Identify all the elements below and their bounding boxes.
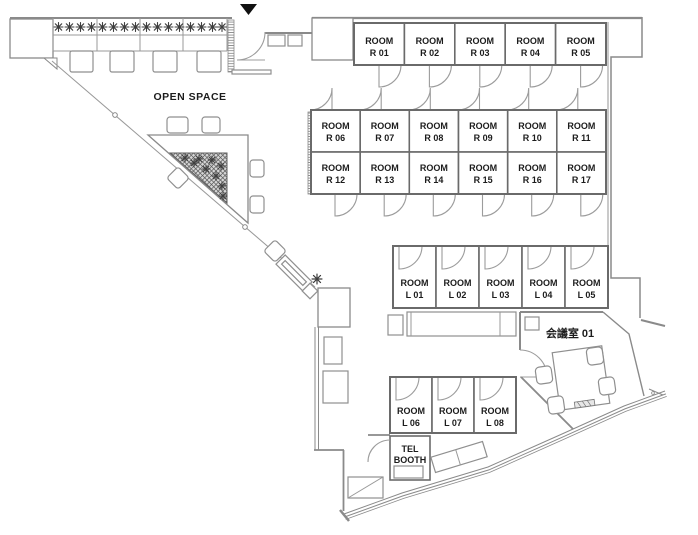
svg-text:ROOM: ROOM <box>371 163 399 173</box>
room-r06: ROOM R 06 <box>310 88 360 152</box>
room-r04: ROOM R 04 <box>505 23 555 87</box>
room-r16: ROOM R 16 <box>508 152 557 216</box>
tel-booth-label: TEL <box>402 444 420 454</box>
meeting-room-label: 会議室 01 <box>546 326 594 340</box>
svg-text:L 07: L 07 <box>444 418 462 428</box>
chair <box>250 160 264 177</box>
window-counter <box>53 18 227 72</box>
hatched-wall <box>228 20 234 72</box>
door <box>384 194 406 216</box>
svg-text:R 07: R 07 <box>375 133 394 143</box>
room-r08: ROOM R 08 <box>408 88 458 152</box>
room-r03: ROOM R 03 <box>455 23 505 87</box>
room-l02: ROOM L 02 <box>436 246 479 308</box>
door <box>556 88 578 110</box>
svg-text:R 13: R 13 <box>375 175 394 185</box>
room-r17: ROOM R 17 <box>557 152 606 216</box>
chair <box>153 51 177 72</box>
door <box>507 88 529 110</box>
equipment-box <box>525 317 539 330</box>
svg-text:R 01: R 01 <box>370 48 389 58</box>
door <box>335 194 357 216</box>
room-r09: ROOM R 09 <box>458 88 508 152</box>
door <box>483 194 505 216</box>
door <box>458 88 480 110</box>
tel-booth-door <box>368 440 390 462</box>
svg-text:ROOM: ROOM <box>567 121 595 131</box>
rooms-l-upper: ROOM L 01 ROOM L 02 ROOM L 03 ROOM L 04 … <box>393 246 608 308</box>
svg-text:ROOM: ROOM <box>401 278 429 288</box>
svg-text:L 02: L 02 <box>449 290 467 300</box>
svg-text:L 05: L 05 <box>578 290 596 300</box>
tel-booth-label: BOOTH <box>394 455 427 465</box>
svg-text:ROOM: ROOM <box>573 278 601 288</box>
chair <box>547 395 565 414</box>
svg-text:ROOM: ROOM <box>469 121 497 131</box>
svg-text:ROOM: ROOM <box>322 163 350 173</box>
room-r02: ROOM R 02 <box>404 23 454 87</box>
svg-text:ROOM: ROOM <box>567 36 595 46</box>
svg-text:ROOM: ROOM <box>487 278 515 288</box>
room-r11: ROOM R 11 <box>556 88 606 152</box>
svg-text:L 06: L 06 <box>402 418 420 428</box>
open-space-label: OPEN SPACE <box>153 91 226 103</box>
door <box>379 65 401 87</box>
room-l08: ROOM L 08 <box>474 377 516 433</box>
chair <box>535 365 553 384</box>
svg-text:L 01: L 01 <box>406 290 424 300</box>
cabinet <box>324 337 342 364</box>
svg-text:R 15: R 15 <box>474 175 493 185</box>
svg-text:ROOM: ROOM <box>567 163 595 173</box>
room-l06: ROOM L 06 <box>390 377 432 433</box>
door <box>581 194 603 216</box>
door <box>310 88 332 110</box>
entrance-door <box>237 32 265 60</box>
entrance <box>232 4 353 74</box>
console-table <box>276 255 312 291</box>
floor-plan: OPEN SPACE ROOM R 01 <box>0 0 698 535</box>
svg-text:R 08: R 08 <box>424 133 443 143</box>
chair <box>202 117 220 133</box>
svg-text:ROOM: ROOM <box>322 121 350 131</box>
chair <box>167 117 188 133</box>
svg-text:L 04: L 04 <box>535 290 553 300</box>
room-r05: ROOM R 05 <box>556 23 606 87</box>
svg-text:ROOM: ROOM <box>481 406 509 416</box>
svg-text:R 09: R 09 <box>474 133 493 143</box>
rooms-r-top: ROOM R 01 ROOM R 02 ROOM R 03 ROOM R 04 … <box>354 23 606 87</box>
svg-text:ROOM: ROOM <box>371 121 399 131</box>
floor-plan-svg: OPEN SPACE ROOM R 01 <box>0 0 698 535</box>
svg-text:ROOM: ROOM <box>365 36 393 46</box>
window-bench <box>431 441 487 472</box>
room-r14: ROOM R 14 <box>409 152 458 216</box>
booth-seat <box>394 466 423 478</box>
svg-text:L 08: L 08 <box>486 418 504 428</box>
room-r12: ROOM R 12 <box>311 152 360 216</box>
room-r10: ROOM R 10 <box>507 88 557 152</box>
svg-text:R 12: R 12 <box>326 175 345 185</box>
svg-text:R 16: R 16 <box>523 175 542 185</box>
door <box>359 88 381 110</box>
room-r01: ROOM R 01 <box>354 23 404 87</box>
svg-text:R 14: R 14 <box>424 175 443 185</box>
svg-text:R 03: R 03 <box>470 48 489 58</box>
svg-text:R 04: R 04 <box>521 48 540 58</box>
svg-text:ROOM: ROOM <box>469 163 497 173</box>
entrance-marker-icon <box>240 4 257 15</box>
closet <box>10 19 53 58</box>
svg-text:R 17: R 17 <box>572 175 591 185</box>
svg-text:R 05: R 05 <box>571 48 590 58</box>
lounge-sofa <box>388 312 516 336</box>
svg-text:R 02: R 02 <box>420 48 439 58</box>
door <box>433 194 455 216</box>
svg-text:ROOM: ROOM <box>466 36 494 46</box>
svg-text:ROOM: ROOM <box>516 36 544 46</box>
svg-text:ROOM: ROOM <box>420 163 448 173</box>
chair <box>110 51 134 72</box>
entry-cabinet <box>288 35 302 46</box>
cabinet <box>323 371 348 403</box>
svg-text:R 10: R 10 <box>523 133 542 143</box>
chair <box>70 51 93 72</box>
room-r13: ROOM R 13 <box>360 152 409 216</box>
door <box>581 65 603 87</box>
svg-text:ROOM: ROOM <box>444 278 472 288</box>
chair <box>197 51 221 72</box>
door <box>480 65 502 87</box>
entry-bench <box>232 70 271 74</box>
chair <box>598 376 616 395</box>
room-l04: ROOM L 04 <box>522 246 565 308</box>
room-l03: ROOM L 03 <box>479 246 522 308</box>
chair <box>586 346 604 365</box>
room-l05: ROOM L 05 <box>565 246 608 308</box>
svg-text:R 06: R 06 <box>326 133 345 143</box>
chair <box>167 167 190 190</box>
wall-block <box>318 288 350 327</box>
svg-text:ROOM: ROOM <box>416 36 444 46</box>
svg-text:L 03: L 03 <box>492 290 510 300</box>
tel-booth: TEL BOOTH <box>368 435 430 480</box>
entry-cabinet <box>268 35 285 46</box>
svg-text:ROOM: ROOM <box>518 163 546 173</box>
plant-icon <box>312 274 322 284</box>
svg-text:ROOM: ROOM <box>518 121 546 131</box>
chair <box>250 196 264 213</box>
svg-text:ROOM: ROOM <box>439 406 467 416</box>
svg-text:ROOM: ROOM <box>530 278 558 288</box>
rooms-r-mid-upper: ROOM R 06 ROOM R 07 ROOM R 08 ROOM R 09 … <box>310 88 606 152</box>
door <box>429 65 451 87</box>
pillar <box>312 18 353 60</box>
rooms-l-lower: ROOM L 06 ROOM L 07 ROOM L 08 <box>390 377 516 433</box>
room-l07: ROOM L 07 <box>432 377 474 433</box>
door <box>532 194 554 216</box>
svg-text:ROOM: ROOM <box>420 121 448 131</box>
svg-text:ROOM: ROOM <box>397 406 425 416</box>
storage-room <box>348 477 383 498</box>
door <box>530 65 552 87</box>
room-l01: ROOM L 01 <box>393 246 436 308</box>
triangle-table <box>148 117 264 223</box>
room-r07: ROOM R 07 <box>359 88 409 152</box>
room-r15: ROOM R 15 <box>459 152 508 216</box>
door <box>408 88 430 110</box>
corridor-furniture <box>264 240 322 299</box>
svg-text:R 11: R 11 <box>572 133 591 143</box>
